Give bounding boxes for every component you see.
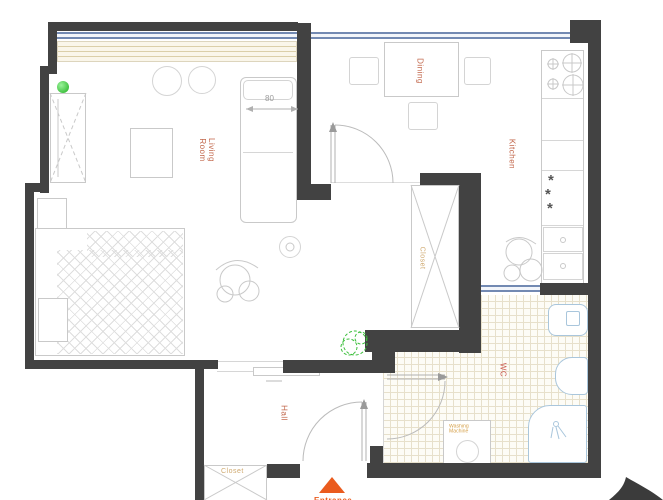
door-marker-icon (57, 81, 69, 93)
kitchen-label: Kitchen (508, 139, 517, 169)
north-arrow-icon (609, 477, 663, 500)
dimension-line (246, 106, 298, 112)
dining-label: Dining (416, 58, 425, 84)
wardrobe-x-icon (50, 93, 86, 183)
living-room-label: Living Room (198, 138, 216, 162)
wc-label: WC (499, 363, 508, 377)
entrance-label: Entrance (314, 496, 352, 500)
door-wc (387, 373, 448, 439)
shower-head-icon (551, 422, 566, 440)
floor-plan: * * * Washing Machine (0, 0, 663, 500)
plan-linework (0, 0, 663, 500)
plant-sketch-icon (504, 237, 542, 281)
living-room-label-line2: Room (198, 138, 207, 162)
hall-label: Hall (280, 405, 289, 421)
closet-tall-label: Closet (418, 247, 427, 270)
drawer-knobs-icon (561, 238, 566, 269)
sofa-width-dimension: 80 (265, 94, 274, 103)
green-plant-icon (341, 331, 367, 355)
armchair-sketch-icon (216, 260, 259, 302)
living-room-label-line1: Living (207, 138, 216, 162)
lamp-inner-icon (286, 243, 294, 251)
entrance-triangle-icon (319, 477, 345, 493)
door-living-dining (329, 122, 393, 183)
door-entrance (303, 399, 368, 461)
stove-burners-icon (547, 53, 584, 96)
closet-hall-label: Closet (221, 468, 244, 475)
